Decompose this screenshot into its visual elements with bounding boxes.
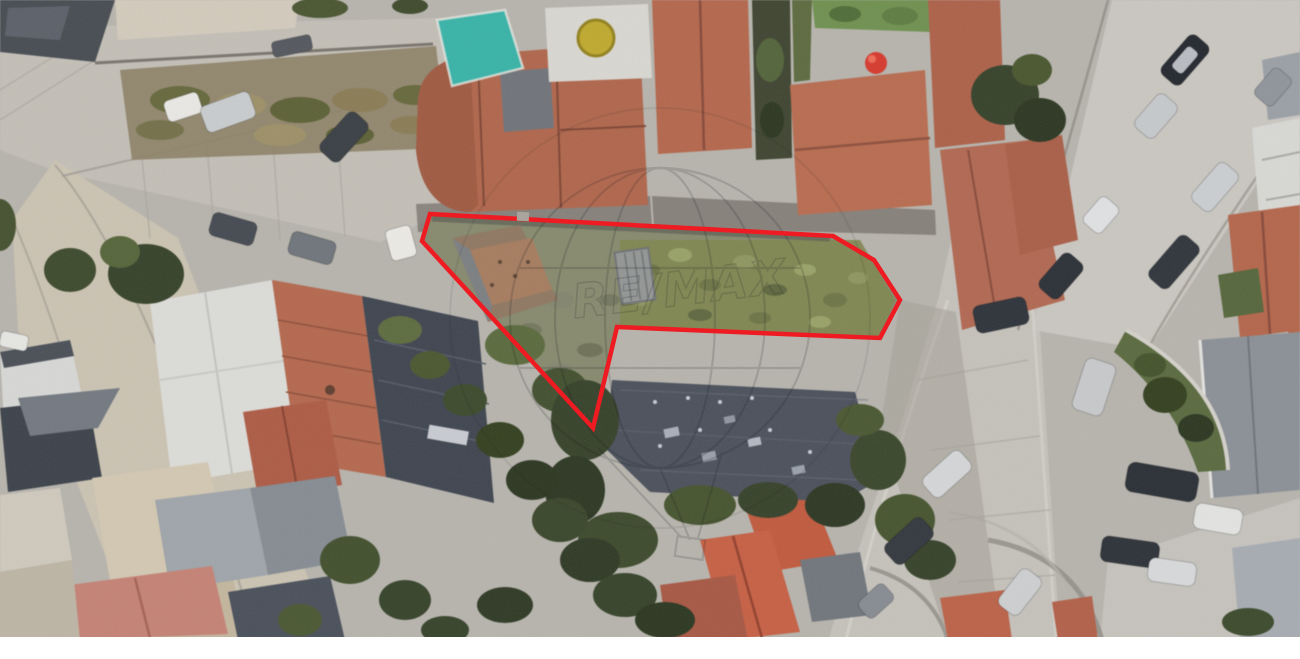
boundary-dash-gap bbox=[517, 212, 529, 222]
aerial-photo: RE/MAX bbox=[0, 0, 1300, 637]
letterbox-bottom bbox=[0, 637, 1300, 659]
aerial-listing-screenshot: RE/MAX bbox=[0, 0, 1300, 659]
